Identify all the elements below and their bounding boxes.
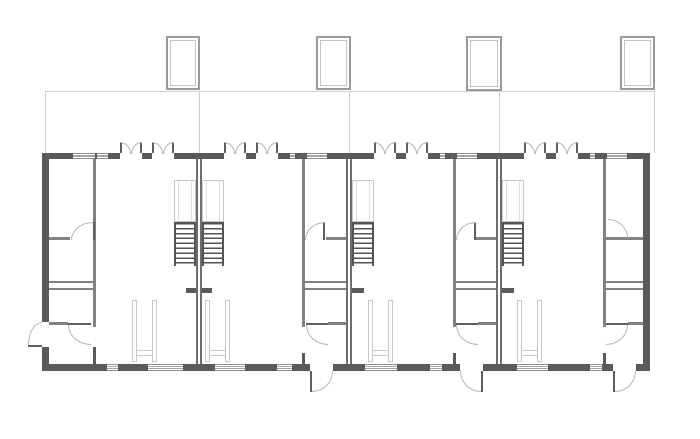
door-opening [613, 364, 636, 371]
garden-plot-divider-line [45, 91, 46, 153]
room-wall [305, 281, 346, 283]
door-swing-arc [28, 322, 42, 345]
door-swing-arc [306, 325, 328, 345]
chimney [466, 36, 502, 91]
stair-flight-treads [352, 222, 374, 266]
door-swing-arc [456, 325, 478, 345]
garden-plot-divider-line [349, 91, 350, 153]
stair-flight-upper [174, 180, 196, 222]
door-swing-arc [256, 142, 267, 154]
stair-flight-upper [202, 180, 224, 222]
room-wall [455, 281, 496, 283]
door-swing-arc [535, 142, 546, 154]
door-leaf [481, 371, 483, 392]
window [107, 364, 118, 371]
wall-stub [186, 288, 196, 293]
room-wall [455, 288, 496, 290]
room-wall [605, 288, 643, 290]
window [215, 364, 245, 371]
door-swing-arc [71, 222, 93, 240]
room-wall [478, 322, 496, 325]
window [457, 153, 477, 159]
wall-stub [502, 288, 514, 293]
stair-flight-treads [202, 222, 224, 266]
stair-flight-upper [352, 180, 374, 222]
door-swing-arc [120, 142, 131, 154]
window [73, 153, 95, 159]
stair-flight-upper [502, 180, 524, 222]
room-wall [328, 322, 346, 325]
door-swing-arc [608, 219, 628, 238]
room-wall [605, 281, 643, 283]
window [290, 153, 295, 159]
door-swing-arc [68, 325, 91, 345]
window [307, 153, 327, 159]
door-swing-arc [235, 142, 246, 154]
room-wall [49, 281, 93, 283]
door-swing-arc [615, 371, 636, 392]
room-wall [49, 288, 93, 290]
window [430, 364, 442, 371]
garden-plot-divider-line [499, 91, 500, 153]
door-swing-arc [556, 142, 567, 154]
door-swing-arc [460, 371, 481, 392]
chimney [620, 36, 655, 90]
garden-plot-divider-line [654, 91, 655, 153]
floor-plan-canvas [0, 0, 700, 439]
door-opening [42, 322, 49, 347]
room-wall [476, 237, 496, 240]
wall-stub [352, 288, 364, 293]
room-wall [628, 322, 643, 325]
room-wall [305, 288, 346, 290]
room-wall [326, 237, 346, 240]
door-swing-arc [567, 142, 578, 154]
door-swing-arc [152, 142, 163, 154]
wall-stub [302, 353, 305, 364]
window [148, 364, 183, 371]
stair-flight-treads [174, 222, 196, 266]
partition-wall [93, 159, 96, 327]
door-swing-arc [417, 142, 428, 154]
window [97, 153, 108, 159]
wall-stub [453, 353, 456, 364]
room-wall [49, 237, 70, 240]
door-swing-arc [163, 142, 174, 154]
door-swing-arc [224, 142, 235, 154]
door-swing-arc [524, 142, 535, 154]
door-swing-arc [305, 222, 325, 240]
chimney [166, 36, 200, 90]
window [277, 364, 292, 371]
chimney [316, 36, 351, 90]
partition-wall [603, 159, 606, 327]
wall-stub [93, 347, 96, 364]
garden-plot-divider-line [199, 91, 200, 153]
partition-wall [302, 159, 305, 327]
door-opening [310, 364, 333, 371]
door-swing-arc [374, 142, 385, 154]
door-swing-arc [385, 142, 396, 154]
door-leaf [93, 222, 95, 240]
window [440, 153, 445, 159]
furniture-bar [372, 350, 389, 356]
garden-edge-line [45, 91, 655, 92]
exterior-wall [42, 364, 650, 371]
furniture-bar [136, 350, 153, 356]
room-wall [49, 322, 68, 325]
door-swing-arc [456, 222, 476, 240]
window [365, 364, 397, 371]
wall-stub [603, 353, 606, 364]
door-swing-arc [267, 142, 278, 154]
window [590, 153, 595, 159]
wall-stub [202, 288, 212, 293]
door-swing-arc [406, 142, 417, 154]
furniture-bar [521, 350, 538, 356]
door-swing-arc [312, 371, 333, 392]
stair-flight-treads [502, 222, 524, 266]
door-opening [460, 364, 483, 371]
door-leaf [28, 345, 42, 347]
window [517, 364, 548, 371]
furniture-bar [209, 350, 226, 356]
window [590, 364, 602, 371]
door-swing-arc [606, 325, 628, 345]
door-swing-arc [131, 142, 142, 154]
exterior-wall [643, 153, 650, 371]
partition-wall [453, 159, 456, 327]
window [607, 153, 627, 159]
